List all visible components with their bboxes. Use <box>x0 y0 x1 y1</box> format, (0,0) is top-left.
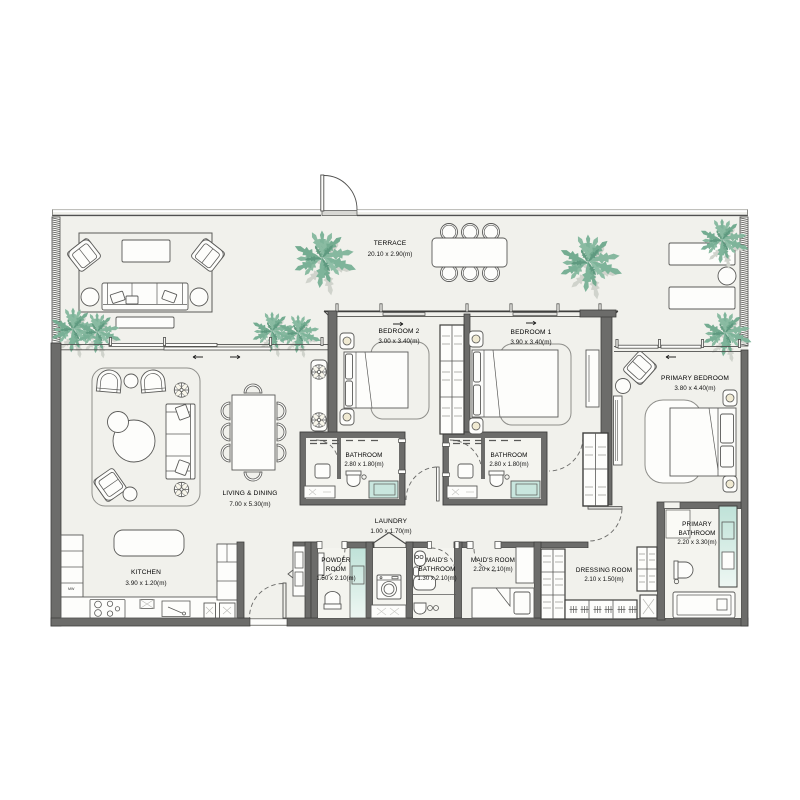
svg-text:3.90 x 3.40(m): 3.90 x 3.40(m) <box>510 339 551 346</box>
svg-text:1.30 x 2.10(m): 1.30 x 2.10(m) <box>417 575 456 582</box>
svg-text:2.20 x 2.10(m): 2.20 x 2.10(m) <box>473 566 512 573</box>
svg-text:2.80 x 1.80(m): 2.80 x 1.80(m) <box>489 461 528 468</box>
svg-text:BATHROOM: BATHROOM <box>678 530 715 537</box>
svg-text:PRIMARY BEDROOM: PRIMARY BEDROOM <box>661 375 729 382</box>
svg-text:POWDER: POWDER <box>321 557 351 564</box>
svg-text:BATHROOM: BATHROOM <box>490 452 527 459</box>
svg-text:LIVING & DINING: LIVING & DINING <box>222 490 277 497</box>
svg-text:LAUNDRY: LAUNDRY <box>375 518 408 525</box>
svg-text:KITCHEN: KITCHEN <box>131 569 161 576</box>
svg-text:1.50 x 2.10(m): 1.50 x 2.10(m) <box>316 575 355 582</box>
svg-text:3.90 x 1.20(m): 3.90 x 1.20(m) <box>125 580 166 587</box>
svg-text:7.00 x 5.30(m): 7.00 x 5.30(m) <box>229 501 270 508</box>
svg-text:2.80 x 1.80(m): 2.80 x 1.80(m) <box>344 461 383 468</box>
svg-text:BATHROOM: BATHROOM <box>345 452 382 459</box>
svg-text:2.10 x 1.50(m): 2.10 x 1.50(m) <box>584 576 623 583</box>
svg-text:2.20 x 3.30(m): 2.20 x 3.30(m) <box>677 539 716 546</box>
svg-text:BATHROOM: BATHROOM <box>418 566 455 573</box>
svg-text:MAID'S ROOM: MAID'S ROOM <box>471 557 515 564</box>
svg-text:TERRACE: TERRACE <box>374 240 407 247</box>
svg-text:ROOM: ROOM <box>326 566 346 573</box>
svg-text:MAID'S: MAID'S <box>426 557 448 564</box>
svg-text:PRIMARY: PRIMARY <box>682 521 712 528</box>
svg-text:1.00 x 1.70(m): 1.00 x 1.70(m) <box>370 528 411 535</box>
svg-text:DRESSING ROOM: DRESSING ROOM <box>576 567 632 574</box>
svg-text:BEDROOM 1: BEDROOM 1 <box>511 329 552 336</box>
svg-text:3.80 x 4.40(m): 3.80 x 4.40(m) <box>674 385 715 392</box>
svg-text:3.00 x 3.40(m): 3.00 x 3.40(m) <box>378 338 419 345</box>
svg-text:MW: MW <box>68 587 75 591</box>
svg-text:BEDROOM 2: BEDROOM 2 <box>379 328 420 335</box>
svg-text:20.10 x 2.90(m): 20.10 x 2.90(m) <box>368 251 413 258</box>
